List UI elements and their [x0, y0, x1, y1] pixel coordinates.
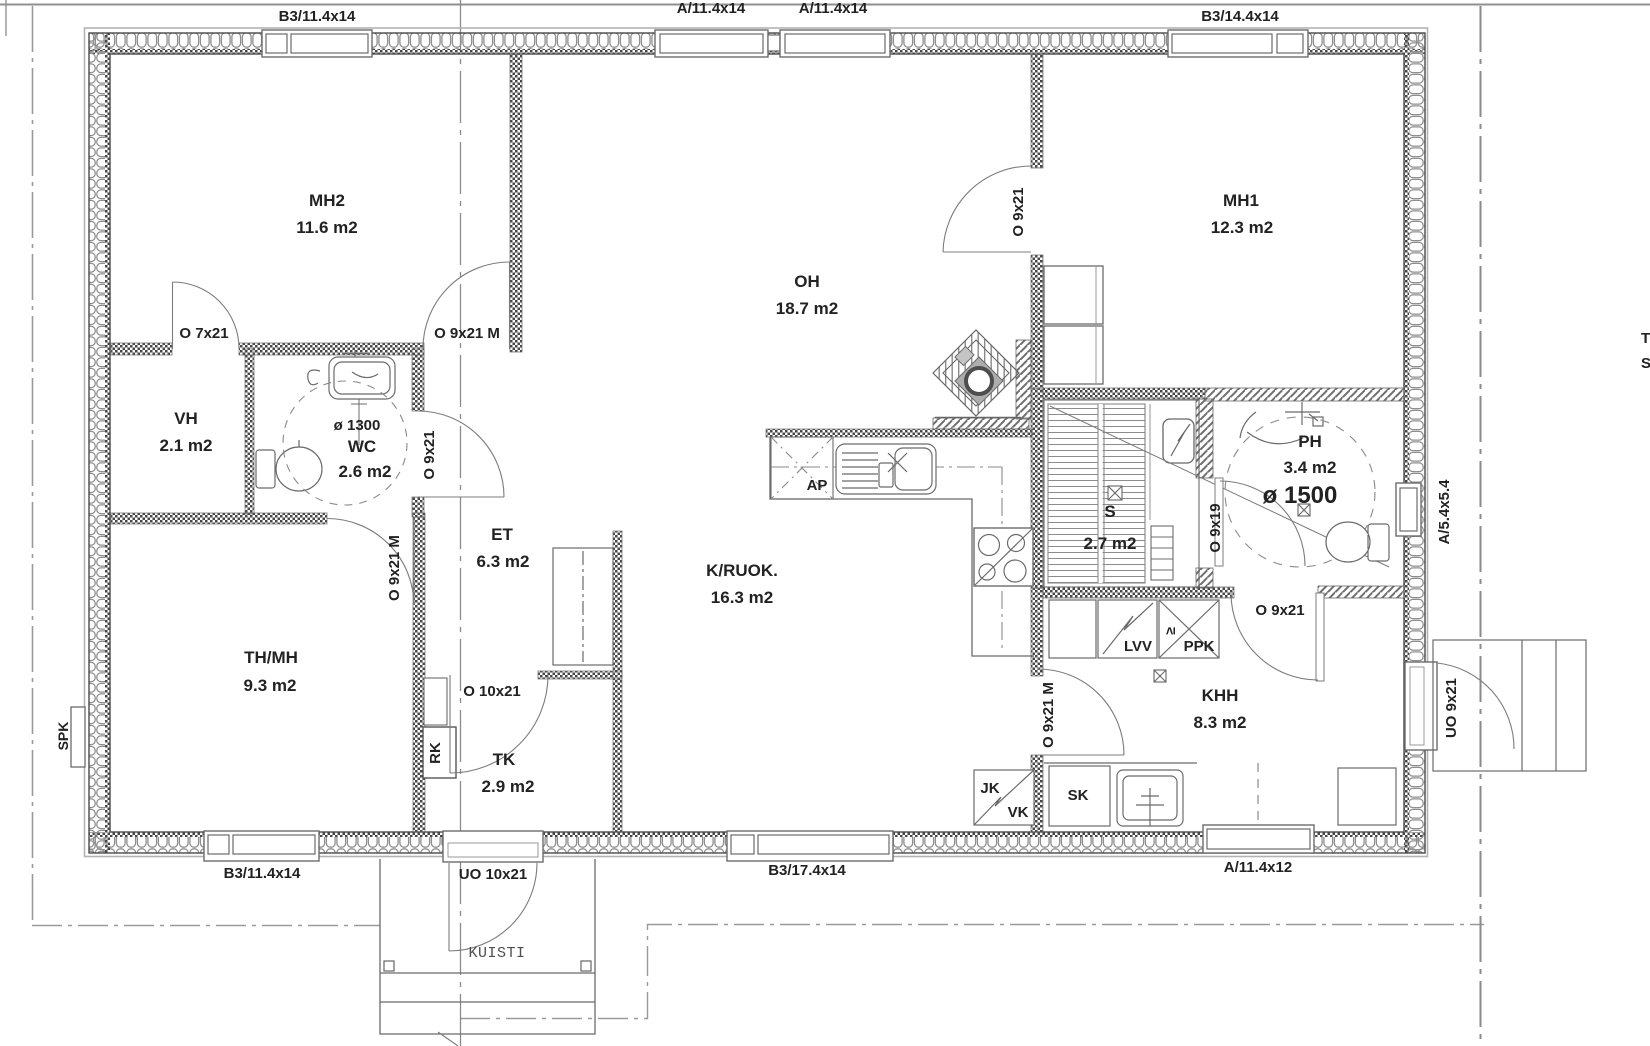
- svg-text:MH2: MH2: [309, 191, 345, 210]
- svg-text:UO 9x21: UO 9x21: [1443, 678, 1460, 738]
- svg-text:O 9x21 M: O 9x21 M: [434, 325, 500, 342]
- svg-text:JK: JK: [980, 780, 999, 797]
- svg-text:MH1: MH1: [1223, 191, 1259, 210]
- svg-text:2.1 m2: 2.1 m2: [160, 436, 213, 455]
- svg-text:16.3 m2: 16.3 m2: [711, 588, 773, 607]
- svg-text:B3/11.4x14: B3/11.4x14: [279, 8, 356, 25]
- svg-text:3.4 m2: 3.4 m2: [1284, 458, 1337, 477]
- svg-text:OH: OH: [794, 272, 820, 291]
- svg-text:LVV: LVV: [1124, 638, 1152, 655]
- svg-text:B3/14.4x14: B3/14.4x14: [1201, 8, 1279, 25]
- svg-text:≥: ≥: [1162, 627, 1178, 635]
- svg-text:VH: VH: [174, 409, 198, 428]
- svg-text:K/RUOK.: K/RUOK.: [706, 561, 778, 580]
- svg-text:WC: WC: [348, 437, 376, 456]
- svg-text:TK: TK: [493, 750, 516, 769]
- svg-text:12.3 m2: 12.3 m2: [1211, 218, 1273, 237]
- svg-text:A/11.4x12: A/11.4x12: [1224, 859, 1292, 876]
- svg-text:VK: VK: [1008, 804, 1029, 821]
- svg-text:ET: ET: [491, 525, 513, 544]
- svg-text:A/11.4x14: A/11.4x14: [677, 0, 746, 17]
- svg-text:T: T: [1641, 330, 1650, 347]
- svg-text:2.9 m2: 2.9 m2: [482, 777, 535, 796]
- svg-text:O 9x21: O 9x21: [1010, 187, 1027, 236]
- svg-text:B3/17.4x14: B3/17.4x14: [768, 862, 846, 879]
- svg-text:O 9x21: O 9x21: [1255, 602, 1304, 619]
- svg-text:9.3 m2: 9.3 m2: [244, 676, 297, 695]
- svg-text:PPK: PPK: [1184, 638, 1215, 655]
- svg-text:SK: SK: [1068, 787, 1089, 804]
- svg-text:PH: PH: [1298, 432, 1322, 451]
- svg-text:KHH: KHH: [1202, 686, 1239, 705]
- svg-text:RK: RK: [427, 742, 444, 764]
- svg-text:18.7 m2: 18.7 m2: [776, 299, 838, 318]
- svg-text:O 9x21 M: O 9x21 M: [386, 535, 403, 601]
- svg-text:AP: AP: [807, 477, 828, 494]
- svg-text:11.6 m2: 11.6 m2: [296, 218, 357, 237]
- svg-text:O 7x21: O 7x21: [179, 325, 228, 342]
- svg-text:O 10x21: O 10x21: [463, 683, 521, 700]
- svg-text:O 9x19: O 9x19: [1207, 503, 1224, 552]
- svg-text:ø 1300: ø 1300: [334, 417, 381, 434]
- svg-text:O 9x21 M: O 9x21 M: [1040, 682, 1057, 748]
- svg-text:S: S: [1104, 502, 1115, 521]
- svg-text:A/11.4x14: A/11.4x14: [799, 0, 868, 17]
- svg-text:2.7 m2: 2.7 m2: [1084, 534, 1137, 553]
- svg-text:S: S: [1641, 355, 1650, 372]
- svg-text:KUISTI: KUISTI: [468, 945, 525, 962]
- svg-text:A/5.4x5.4: A/5.4x5.4: [1436, 479, 1453, 545]
- svg-text:UO 10x21: UO 10x21: [459, 866, 527, 883]
- svg-text:ø 1500: ø 1500: [1263, 482, 1338, 509]
- svg-text:8.3 m2: 8.3 m2: [1194, 713, 1247, 732]
- svg-text:SPK: SPK: [55, 722, 71, 751]
- svg-text:6.3 m2: 6.3 m2: [477, 552, 530, 571]
- svg-text:TH/MH: TH/MH: [244, 648, 298, 667]
- svg-text:B3/11.4x14: B3/11.4x14: [224, 865, 301, 882]
- svg-text:2.6 m2: 2.6 m2: [339, 462, 392, 481]
- svg-text:O 9x21: O 9x21: [421, 430, 438, 479]
